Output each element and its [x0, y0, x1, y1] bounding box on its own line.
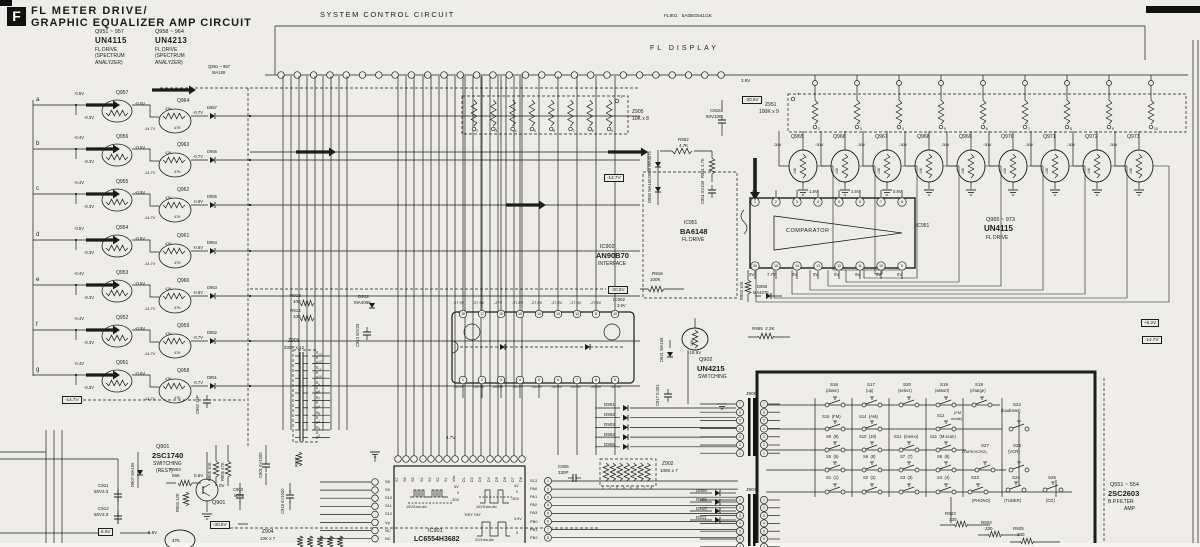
schematic-label: (up) — [866, 389, 873, 393]
schematic-label: 6 — [318, 406, 320, 410]
schematic-label: 0V — [749, 273, 754, 277]
schematic-label: 1.8V — [809, 190, 818, 194]
schematic-label: PA0 — [530, 487, 537, 491]
schematic-label: PA1 — [530, 495, 537, 499]
schematic-label: (TUNER) — [1004, 499, 1021, 503]
schematic-label: 0.6V — [194, 474, 203, 479]
schematic-label: D952 — [207, 331, 217, 335]
schematic-label: -30V — [1025, 143, 1033, 147]
schematic-label: (down) — [826, 389, 839, 393]
schematic-label: (CD) — [1046, 499, 1055, 503]
schematic-label: -0.7V — [193, 111, 203, 115]
schematic-label: D907 MA165 — [131, 463, 135, 487]
schematic-label: 0.8V — [893, 190, 902, 194]
schematic-label: R924 — [981, 521, 992, 526]
schematic-label: R907 — [295, 457, 299, 467]
schematic-label: D902 — [604, 413, 615, 418]
schematic-label: 47K — [165, 333, 172, 337]
schematic-label: -18.6V — [688, 351, 701, 356]
schematic-label: b — [36, 141, 39, 147]
schematic-label: 1 — [602, 487, 604, 491]
schematic-label: mode) — [951, 417, 962, 421]
schematic-label: S15 (FM) — [822, 415, 841, 419]
schematic-label: 47K — [165, 288, 172, 292]
bp-filter-part: 2SC2603 — [1108, 490, 1139, 498]
schematic-label: -26.8V — [531, 386, 542, 390]
schematic-label: 2 — [609, 487, 611, 491]
schematic-label: D908 — [696, 489, 707, 494]
schematic-label: 100K — [650, 278, 661, 283]
schematic-label: 10K — [920, 168, 924, 174]
schematic-label: B.P.FILTER — [1108, 500, 1134, 505]
schematic-label: 10V/1ms.div — [406, 506, 427, 510]
schematic-label: C952 15P — [196, 395, 200, 414]
schematic-label: -30.9V — [610, 386, 621, 390]
schematic-label: S6 — [404, 477, 408, 482]
schematic-label: 7 — [573, 130, 575, 134]
schematic-label: Q972 — [1085, 135, 1098, 140]
schematic-label: 2 — [318, 435, 320, 439]
schematic-label: -30V — [1067, 143, 1075, 147]
schematic-label: S17 — [867, 383, 875, 388]
schematic-label: 5 — [534, 130, 536, 134]
schematic-label: -30V — [941, 143, 949, 147]
schematic-label: 7 — [1028, 128, 1030, 132]
schematic-label: (VCR) — [1008, 450, 1020, 454]
schematic-label: S9 — [385, 488, 390, 492]
schematic-label: S23 — [971, 476, 979, 481]
schematic-label: 4 — [902, 128, 904, 132]
schematic-label: 2 — [476, 130, 478, 134]
schematic-label: (assort) — [935, 389, 949, 393]
schematic-label: S14 (AM) — [859, 415, 878, 419]
schematic-label: 4 — [515, 130, 517, 134]
schematic-label: 9 — [318, 384, 320, 388]
schematic-label: 47K — [174, 262, 181, 266]
schematic-label: 50V1 — [234, 494, 244, 498]
schematic-label: Vp — [385, 521, 390, 525]
schematic-label: 0V — [219, 484, 225, 489]
schematic-label: -26.9V — [492, 386, 503, 390]
schematic-label: -30V — [773, 143, 781, 147]
schematic-label: D7 — [512, 477, 516, 482]
schematic-label: D905 — [604, 443, 615, 448]
schematic-label: 0V — [897, 273, 902, 277]
schematic-label: 330P x 12 — [284, 346, 304, 351]
schematic-label: 100 — [293, 315, 301, 320]
schematic-label: d — [36, 232, 39, 238]
schematic-label: S11 — [385, 504, 392, 508]
fl-display-title: FL DISPLAY — [650, 45, 719, 52]
schematic-label: Q951 — [116, 361, 128, 366]
schematic-label: S26 — [1013, 444, 1021, 449]
schematic-label: Q960 — [177, 279, 189, 284]
schematic-label: S13 — [530, 479, 537, 483]
j906-connector: J906 — [746, 393, 756, 398]
schematic-label: +5.2V — [1141, 319, 1159, 327]
schematic-label: 5V — [454, 486, 459, 490]
schematic-label: -14.7V — [144, 263, 155, 267]
schematic-label: Z901 — [288, 339, 299, 344]
schematic-label: D955 — [207, 195, 217, 199]
schematic-label: -0.3V — [84, 296, 94, 300]
schematic-label: 10K — [1088, 168, 1092, 174]
schematic-label: D6 — [504, 477, 508, 482]
schematic-label: Q970 — [1001, 135, 1014, 140]
schematic-label: Q968 — [917, 135, 930, 140]
schematic-label: D910 — [696, 507, 707, 512]
schematic-label: 3 — [860, 128, 862, 132]
schematic-label: D951 — [207, 376, 217, 380]
schematic-label: 0V — [855, 273, 860, 277]
schematic-label: -0.5V — [135, 282, 145, 286]
schematic-label: R925 — [1013, 527, 1024, 532]
ic951-part: BA6148 — [680, 228, 708, 236]
schematic-label: 10K — [836, 168, 840, 174]
ic901-part: LC6554H3682 — [414, 536, 460, 543]
schematic-label: PA3 — [530, 511, 537, 515]
schematic-label: -0.5V — [74, 92, 84, 96]
schematic-label: 8 — [318, 391, 320, 395]
schematic-label: -26.9V — [551, 386, 562, 390]
schematic-label: R904 12K — [176, 493, 180, 512]
schematic-label: D1 — [463, 477, 467, 482]
schematic-label: 10 — [1154, 128, 1158, 132]
schematic-label: Q901 — [156, 445, 169, 451]
schematic-label: 4.7V — [446, 436, 455, 441]
schematic-label: S22 — [1013, 403, 1021, 408]
schematic-page: 1234567816151413121110918171615141312111… — [0, 0, 1200, 547]
schematic-label: e — [36, 277, 39, 283]
schematic-label: R951 4.7K — [701, 158, 705, 178]
schematic-label: Z904 — [262, 530, 273, 535]
schematic-label: -27.9V — [453, 302, 464, 306]
schematic-label: R916 — [652, 272, 663, 277]
schematic-label: R903 — [170, 468, 181, 473]
schematic-label: -0.7V — [193, 155, 203, 159]
schematic-label: NC — [385, 529, 391, 533]
schematic-label: 13 — [318, 354, 322, 358]
schematic-label: -0.4V — [74, 362, 84, 366]
schematic-label: 6 — [553, 130, 555, 134]
schematic-label: S7 — [396, 477, 400, 482]
schematic-label: 3.9V — [741, 79, 750, 84]
schematic-label: IC901 — [428, 529, 443, 535]
schematic-label: -26.9V — [453, 386, 464, 390]
schematic-label: 47K — [174, 127, 181, 131]
schematic-label: -27.8V — [551, 302, 562, 306]
schematic-label: 7.7V — [767, 273, 776, 277]
schematic-label: PB0 — [530, 520, 538, 524]
schematic-label: -30.5V — [210, 521, 230, 529]
schematic-label: Q901 — [212, 501, 225, 507]
schematic-label: 47K — [174, 171, 181, 175]
schematic-label: -27.8V — [512, 302, 523, 306]
schematic-label: -0.6V — [193, 200, 203, 204]
schematic-label: 47K — [174, 307, 181, 311]
schematic-label: 10K — [110, 148, 117, 152]
schematic-label: S8 — [385, 480, 390, 484]
schematic-label: D4 — [488, 477, 492, 482]
schematic-label: Q957 — [116, 91, 128, 96]
schematic-label: 6 — [986, 128, 988, 132]
schematic-label: Q971 — [1043, 135, 1056, 140]
schematic-label: -14.7V — [144, 172, 155, 176]
schematic-label: 0V — [834, 273, 839, 277]
schematic-label: -0.6V — [193, 246, 203, 250]
schematic-label: -14.7V — [144, 217, 155, 221]
schematic-label: 330 — [949, 518, 957, 523]
schematic-label: D958 — [757, 285, 767, 289]
schematic-label: R952 — [678, 138, 689, 143]
schematic-label: D956 — [207, 150, 217, 154]
schematic-label: S4 (4) — [937, 476, 950, 480]
schematic-label: R914 — [290, 309, 301, 314]
schematic-label: -26.9V — [590, 386, 601, 390]
schematic-label: 7 — [318, 398, 320, 402]
schematic-label: -14.7V — [144, 308, 155, 312]
schematic-label: 1.5V — [851, 190, 860, 194]
schematic-label: S7 (7) — [900, 455, 913, 459]
schematic-label: Q966 — [833, 135, 846, 140]
schematic-label: -27.8V — [570, 302, 581, 306]
schematic-label: -26.3V — [512, 386, 523, 390]
schematic-label: Q965 ~ 973 — [986, 218, 1015, 224]
schematic-label: 330P — [558, 471, 569, 476]
schematic-label: S6 (6) — [863, 455, 876, 459]
schematic-label: -26.9V — [570, 386, 581, 390]
schematic-label: IC951 — [916, 224, 929, 229]
schematic-label: -14.7V — [604, 174, 624, 182]
schematic-label: S24 — [1012, 476, 1020, 481]
schematic-label: Vss — [453, 476, 457, 482]
schematic-label: -30V — [815, 143, 823, 147]
schematic-label: PB1 — [530, 528, 538, 532]
schematic-label: a — [36, 97, 39, 103]
j907-connector: J907 — [746, 489, 756, 494]
schematic-label: Q902 — [699, 358, 712, 364]
schematic-label: 10K — [110, 239, 117, 243]
schematic-label: Q965 — [791, 135, 804, 140]
schematic-label: Q952 — [116, 316, 128, 321]
schematic-label: S8 (8) — [937, 455, 950, 459]
schematic-label: g — [36, 367, 39, 373]
schematic-label: Q963 — [177, 143, 189, 148]
schematic-label: 3 — [318, 428, 320, 432]
schematic-label: 11 — [318, 369, 322, 373]
schematic-label: Q962 — [177, 188, 189, 193]
schematic-label: 10K — [794, 168, 798, 174]
fl-display-part: FL901 5A0BG541GK — [664, 15, 712, 20]
schematic-label: -0.6V — [135, 372, 145, 376]
schematic-label: 10K — [691, 340, 695, 346]
schematic-label: C918 6V1000 — [281, 488, 285, 514]
schematic-label: S12 — [937, 414, 944, 418]
schematic-label: S18 — [975, 383, 983, 388]
schematic-label: S1 (1) — [826, 476, 839, 480]
schematic-label: 10K — [1130, 168, 1134, 174]
schematic-label: 3.9V — [514, 518, 522, 522]
schematic-label: MA4075 — [753, 291, 769, 295]
schematic-label: C905 — [558, 465, 569, 470]
schematic-label: 2 — [818, 128, 820, 132]
schematic-label: 47K — [174, 397, 181, 401]
schematic-label: 0V — [792, 273, 797, 277]
schematic-label: S2 — [437, 477, 441, 482]
schematic-label: Q956 — [116, 135, 128, 140]
schematic-label: -30V — [451, 499, 459, 503]
label-overlay: SYSTEM CONTROL CIRCUITFL901 5A0BG541GKFL… — [0, 0, 1200, 547]
schematic-label: -14.7V — [1142, 336, 1162, 344]
schematic-label: 100 — [293, 300, 301, 305]
schematic-label: 10K — [110, 284, 117, 288]
schematic-label: -27.8V — [531, 302, 542, 306]
schematic-label: -0.3V — [84, 116, 94, 120]
schematic-label: 10V/1ms.div — [476, 506, 497, 510]
schematic-label: -26.9V — [473, 386, 484, 390]
schematic-label: C951 6V100 — [701, 181, 705, 204]
schematic-label: 0 — [516, 532, 518, 536]
schematic-label: -0.4V — [74, 136, 84, 140]
schematic-label: 50V3.3 — [94, 513, 108, 518]
schematic-label: -0.3V — [84, 341, 94, 345]
schematic-label: 12 — [318, 361, 322, 365]
schematic-label: 47K — [165, 197, 172, 201]
schematic-label: "KEY ON" — [464, 514, 481, 518]
schematic-label: 10K — [1046, 168, 1050, 174]
schematic-label: (TAPE/VCR2) — [962, 450, 987, 454]
schematic-label: R923 — [945, 512, 956, 517]
schematic-label: 10K x 7 — [260, 537, 275, 542]
schematic-label: 5 — [630, 487, 632, 491]
schematic-label: -27.9V — [473, 302, 484, 306]
schematic-label: (FM — [954, 411, 961, 415]
schematic-label: 8 — [1070, 128, 1072, 132]
schematic-label: -0.3V — [84, 386, 94, 390]
schematic-label: -30V — [511, 498, 519, 502]
schematic-label: Z951 — [765, 103, 776, 108]
schematic-label: 47K — [165, 243, 172, 247]
schematic-label: C911 — [98, 484, 108, 489]
schematic-label: 8 — [650, 487, 652, 491]
schematic-label: S19 — [940, 383, 948, 388]
schematic-label: FL DRIVE — [682, 238, 704, 243]
schematic-label: 5 — [318, 413, 320, 417]
fl-drive-part: UN4115 — [984, 225, 1013, 233]
schematic-label: S3 — [429, 477, 433, 482]
schematic-label: (PHONO) — [972, 499, 990, 503]
schematic-label: Q959 — [177, 324, 189, 329]
schematic-label: S11 (M.scan) — [930, 435, 956, 439]
schematic-label: Q973 — [1127, 135, 1140, 140]
schematic-label: -27V — [494, 302, 502, 306]
schematic-label: -0.5V — [135, 146, 145, 150]
schematic-label: 0V — [752, 190, 757, 194]
schematic-label: 50V100 — [706, 115, 722, 120]
schematic-label: S2 (2) — [863, 476, 876, 480]
schematic-label: -30V — [983, 143, 991, 147]
schematic-label: R913 — [290, 294, 301, 299]
schematic-label: Q953 — [116, 271, 128, 276]
schematic-label: -0.5V — [135, 102, 145, 106]
schematic-label: 47K — [165, 152, 172, 156]
schematic-label: 47K — [174, 216, 181, 220]
schematic-label: S25 — [1048, 476, 1056, 481]
schematic-label: S27 — [981, 444, 989, 449]
schematic-label: 4 — [623, 487, 625, 491]
schematic-label: f — [36, 322, 38, 328]
schematic-label: Q955 — [116, 180, 128, 185]
schematic-label: S9 (9) — [826, 435, 839, 439]
schematic-label: 3.9V — [617, 304, 626, 308]
schematic-label: S12 — [385, 512, 392, 516]
schematic-label: S4 — [421, 477, 425, 482]
schematic-label: D5 — [496, 477, 500, 482]
schematic-label: D901 — [604, 403, 615, 408]
schematic-label: Q961 — [177, 234, 189, 239]
schematic-label: 3 — [616, 487, 618, 491]
schematic-label: AMP — [1124, 507, 1135, 512]
system-control-title: SYSTEM CONTROL CIRCUIT — [320, 11, 455, 19]
schematic-label: -0.3V — [84, 160, 94, 164]
schematic-label: -0.3V — [84, 205, 94, 209]
schematic-label: PA2 — [530, 503, 537, 507]
schematic-label: D959 MA4075 — [648, 151, 652, 178]
schematic-label: D903 — [604, 423, 615, 428]
schematic-label: -30V — [857, 143, 865, 147]
schematic-label: S1 — [445, 477, 449, 482]
schematic-label: Z905 — [632, 110, 643, 115]
schematic-label: 47K — [174, 352, 181, 356]
schematic-label: 10K — [110, 104, 117, 108]
schematic-label: -0.4V — [74, 181, 84, 185]
comparator-label: COMPARATOR — [786, 229, 830, 235]
schematic-label: 1 — [797, 93, 799, 97]
schematic-label: 10K — [878, 168, 882, 174]
schematic-label: D912 — [358, 295, 369, 300]
schematic-label: D8 — [520, 477, 524, 482]
schematic-label: D957 — [207, 106, 217, 110]
schematic-label: 47K — [165, 378, 172, 382]
schematic-label: 56K — [172, 474, 180, 479]
schematic-label: C912 — [98, 507, 109, 512]
schematic-label: S10 (10) — [859, 435, 876, 439]
schematic-label: -14.7V — [144, 128, 155, 132]
schematic-label: PB2 — [530, 536, 538, 540]
schematic-label: 50V3.3 — [94, 490, 108, 495]
schematic-label: D3 — [479, 477, 483, 482]
schematic-label: 10K — [110, 329, 117, 333]
schematic-label: 5.6V — [98, 528, 113, 536]
schematic-label: D2 — [471, 477, 475, 482]
schematic-label: -0.4V — [74, 317, 84, 321]
schematic-label: Z902 — [662, 462, 673, 467]
schematic-label: S3 (3) — [900, 476, 913, 480]
schematic-label: Q954 — [116, 226, 128, 231]
schematic-label: D911 — [696, 516, 706, 521]
schematic-label: C913 50V33 — [356, 324, 360, 347]
schematic-label: -0.5V — [135, 237, 145, 241]
q902-part: UN4215 — [697, 365, 725, 373]
schematic-label: c — [36, 186, 39, 192]
schematic-label: S20 — [903, 383, 911, 388]
schematic-label: 4.7K — [679, 144, 688, 149]
schematic-label: SWITCHING — [698, 375, 727, 380]
schematic-label: 5 — [944, 128, 946, 132]
schematic-label: 10K — [110, 193, 117, 197]
schematic-label: 2V/1ms.div — [475, 539, 494, 543]
schematic-label: -30V — [1109, 143, 1117, 147]
